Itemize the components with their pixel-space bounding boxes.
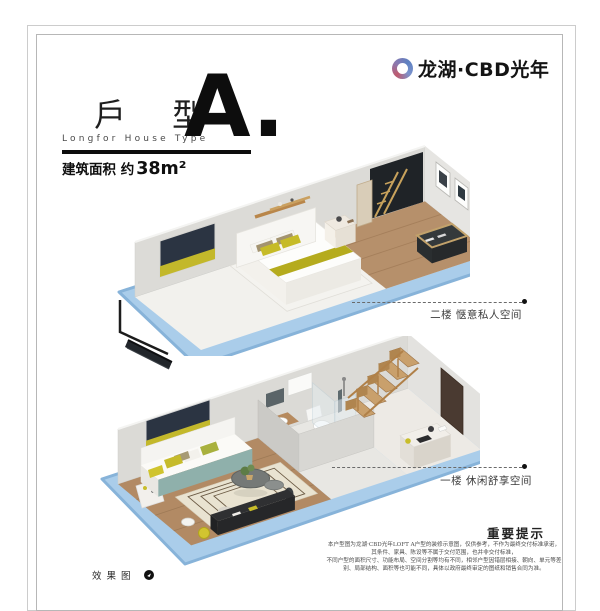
lower-floor-leader-dot xyxy=(522,464,527,469)
title-rule xyxy=(62,150,251,154)
notice-line: 其条件、家具、陈设等不属于交付范围，也并非交付标准， xyxy=(308,549,580,557)
brand-name: 龙湖·CBD光年 xyxy=(418,55,549,82)
brand-logo: 龙湖·CBD光年 xyxy=(392,55,549,82)
house-type-letter: A. xyxy=(184,68,285,147)
poster-page: { "brand": { "name": "龙湖·CBD光年" }, "titl… xyxy=(0,0,600,603)
floor-area: 建筑面积 约 38m² xyxy=(62,158,186,179)
notice-line: 别、局部结构、面积等也可能不同，具体以政府最终审定的图纸和销售合同为准。 xyxy=(308,565,580,573)
notice-line: 本户型图为龙湖·CBD光年LOFT A户型的装修示意图，仅供参考，不作为最终交付… xyxy=(308,541,580,549)
notice-line: 不同户型的面积尺寸、功能布局、空间分割等均有不同，相邻户型因错层相接、朝向、单元… xyxy=(308,557,580,565)
lower-floor-leader-line xyxy=(332,467,522,468)
upper-floor-leader-dot xyxy=(522,299,527,304)
upper-floor-leader-line xyxy=(352,302,522,303)
floor-area-value: 38m² xyxy=(136,159,186,179)
floor-area-label: 建筑面积 约 xyxy=(62,158,134,178)
render-note-label: 效果图 xyxy=(92,568,136,582)
render-note: 效果图 xyxy=(92,568,154,582)
longfor-ring-icon xyxy=(392,58,413,79)
notice-title: 重要提示 xyxy=(464,523,568,542)
compass-icon xyxy=(144,570,154,580)
notice-body: 本户型图为龙湖·CBD光年LOFT A户型的装修示意图，仅供参考，不作为最终交付… xyxy=(308,541,580,573)
lower-floor-callout: 一楼 休闲舒享空间 xyxy=(430,473,542,488)
upper-floor-callout: 二楼 惬意私人空间 xyxy=(420,307,532,322)
